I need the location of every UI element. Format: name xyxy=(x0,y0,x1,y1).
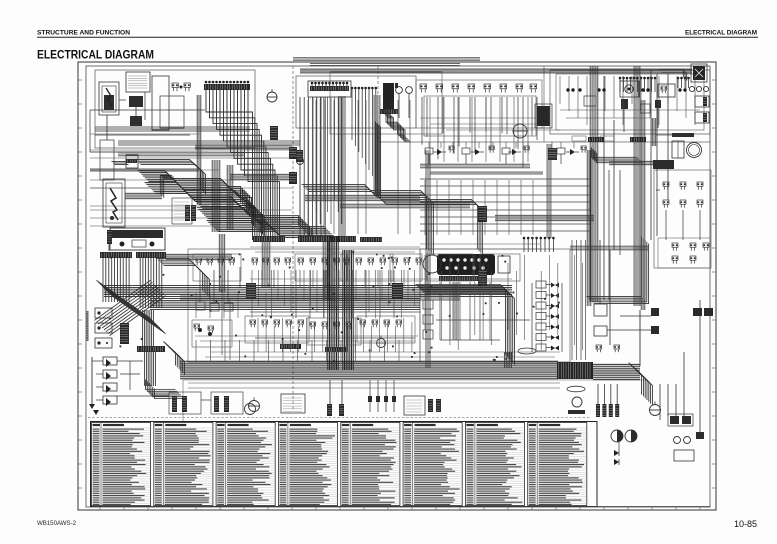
svg-text:ELECTRICAL DIAGRAM: ELECTRICAL DIAGRAM xyxy=(37,48,154,62)
svg-text:WB150AWS-2: WB150AWS-2 xyxy=(37,520,76,527)
svg-text:10-85: 10-85 xyxy=(734,519,757,529)
svg-text:STRUCTURE AND FUNCTION: STRUCTURE AND FUNCTION xyxy=(37,30,130,37)
svg-text:ELECTRICAL DIAGRAM: ELECTRICAL DIAGRAM xyxy=(685,30,757,37)
